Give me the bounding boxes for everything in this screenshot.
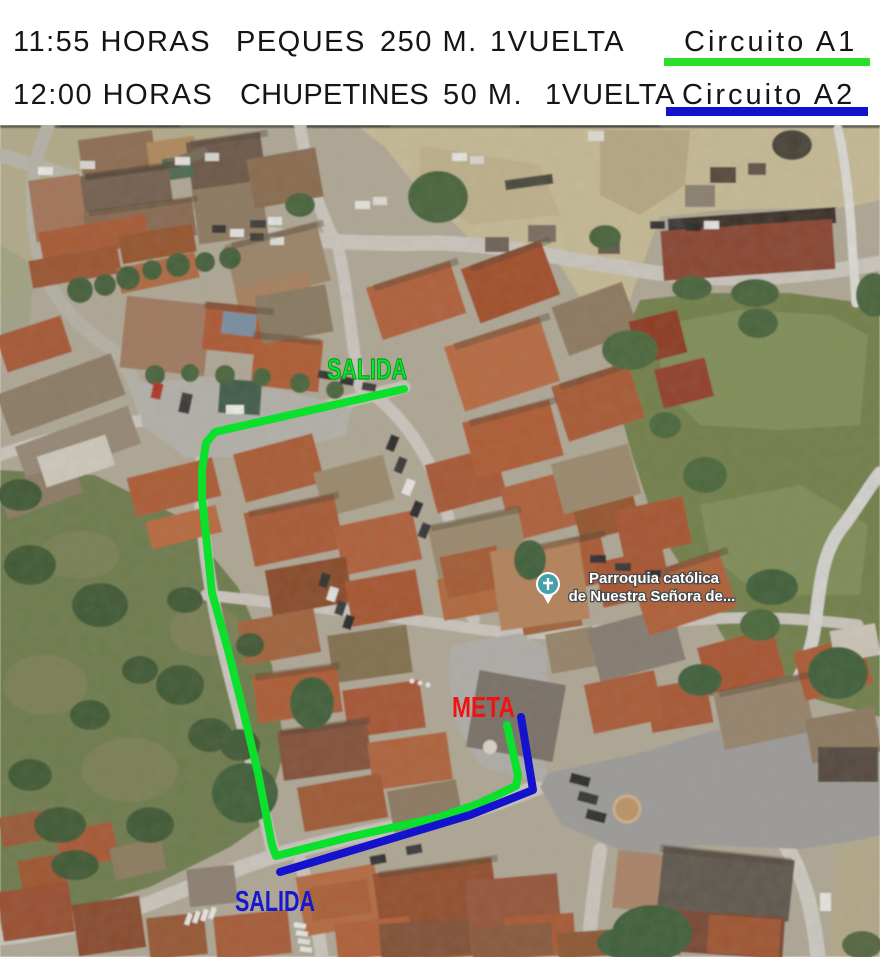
svg-text:META: META bbox=[452, 692, 515, 724]
svg-text:SALIDA: SALIDA bbox=[327, 354, 407, 386]
svg-text:de Nuestra Señora de...: de Nuestra Señora de... bbox=[569, 588, 736, 605]
svg-text:Parroquia católica: Parroquia católica bbox=[589, 570, 720, 587]
svg-text:SALIDA: SALIDA bbox=[235, 886, 315, 918]
